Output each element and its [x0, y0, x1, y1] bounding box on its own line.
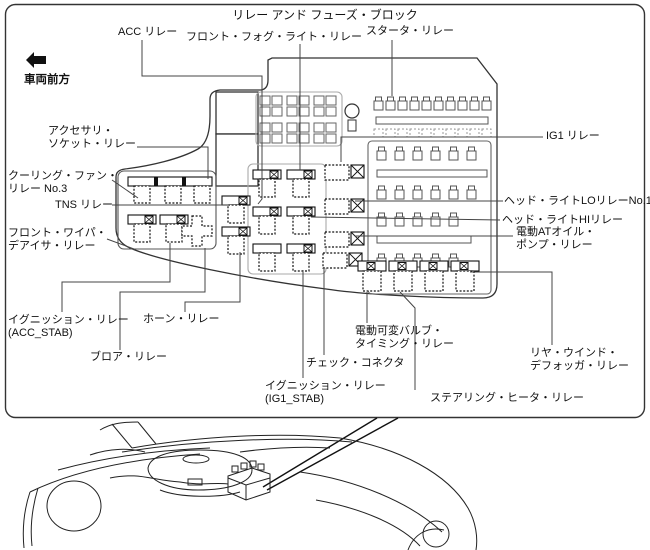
label-ig1-relay: IG1 リレー [546, 130, 600, 143]
bolt-icon [345, 104, 359, 118]
label-accessory-socket-relay: アクセサリ・ ソケット・リレー [48, 125, 136, 150]
location-pointer-lines [263, 418, 398, 490]
label-blower-relay: ブロア・リレー [90, 351, 167, 364]
label-ignition-relay-ig1-stab: イグニッション・リレー (IG1_STAB) [265, 380, 386, 405]
label-front-fog-light-relay: フロント・フォグ・ライト・リレー [186, 31, 362, 44]
label-electric-at-oil-pump-relay: 電動ATオイル・ ポンプ・リレー [516, 226, 595, 251]
label-headlight-lo-relay-no1: ヘッド・ライトLOリレーNo.1 [504, 195, 650, 208]
label-ignition-relay-acc-stab: イグニッション・リレー (ACC_STAB) [8, 314, 129, 339]
figure-title: リレー アンド フューズ・ブロック [0, 6, 650, 23]
front-direction-label: 車両前方 [24, 71, 70, 87]
label-horn-relay: ホーン・リレー [143, 313, 219, 326]
label-starter-relay: スタータ・リレー [366, 25, 454, 38]
vehicle-engine-bay-drawing [23, 422, 476, 550]
label-headlight-hi-relay: ヘッド・ライトHIリレー [502, 214, 623, 227]
label-check-connector: チェック・コネクタ [306, 357, 404, 370]
label-steering-heater-relay: ステアリング・ヒータ・リレー [430, 392, 584, 405]
label-acc-relay: ACC リレー [118, 26, 177, 39]
label-cooling-fan-relay-no3: クーリング・ファン・ リレー No.3 [8, 170, 118, 195]
label-tns-relay: TNS リレー [55, 199, 113, 212]
relay-fuse-block-figure: リレー アンド フューズ・ブロック 車両前方 ACC リレー フロント・フォグ・… [0, 0, 650, 550]
figure-line-art [0, 0, 650, 550]
label-rear-window-defogger-relay: リヤ・ウインド・ デフォッガ・リレー [530, 347, 629, 372]
fuse-box-location [228, 461, 270, 500]
label-variable-valve-timing-relay: 電動可変バルブ・ タイミング・リレー [355, 325, 454, 350]
label-front-wiper-deicer-relay: フロント・ワイパ・ デアイサ・リレー [8, 227, 107, 252]
